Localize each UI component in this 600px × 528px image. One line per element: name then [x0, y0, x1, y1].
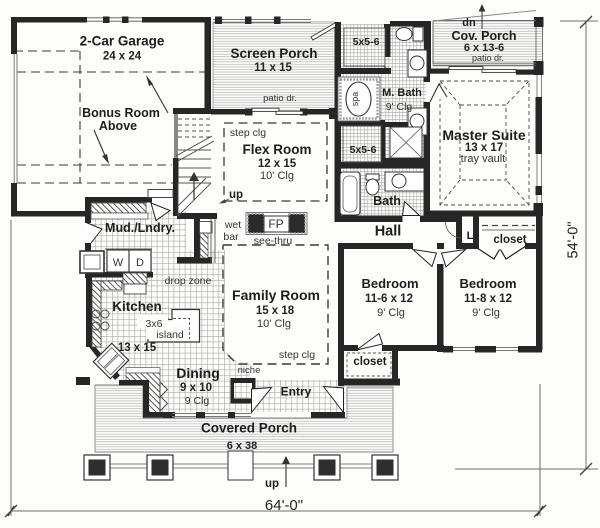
svg-text:up: up [229, 189, 243, 201]
svg-text:FP: FP [268, 217, 283, 231]
svg-text:9 Clg: 9 Clg [185, 395, 210, 407]
svg-text:W: W [113, 257, 124, 269]
svg-text:island: island [156, 329, 184, 341]
svg-text:Dining: Dining [176, 365, 220, 381]
svg-text:Bath: Bath [373, 194, 401, 208]
svg-text:54'-0": 54'-0" [566, 222, 582, 259]
svg-text:closet: closet [353, 356, 386, 368]
svg-text:Kitchen: Kitchen [112, 299, 162, 314]
svg-text:Mud./Lndry.: Mud./Lndry. [105, 221, 175, 235]
svg-text:Hall: Hall [375, 224, 402, 240]
svg-text:Bonus Room: Bonus Room [82, 106, 160, 120]
svg-text:11 x 15: 11 x 15 [254, 62, 292, 74]
svg-text:Master Suite: Master Suite [442, 127, 525, 143]
svg-text:Bedroom: Bedroom [459, 276, 516, 291]
svg-text:M. Bath: M. Bath [382, 87, 422, 99]
svg-text:11-8 x 12: 11-8 x 12 [464, 293, 512, 305]
svg-text:13 x 15: 13 x 15 [118, 342, 157, 354]
svg-text:9' Clg: 9' Clg [386, 101, 413, 113]
svg-text:9' Clg: 9' Clg [377, 307, 405, 319]
svg-text:step clg: step clg [230, 127, 266, 139]
svg-text:spa: spa [350, 92, 360, 107]
svg-text:L: L [467, 230, 474, 242]
svg-text:Covered Porch: Covered Porch [201, 421, 297, 436]
svg-text:12 x 15: 12 x 15 [258, 158, 297, 170]
svg-text:Cov. Porch: Cov. Porch [451, 29, 516, 43]
svg-text:15 x 18: 15 x 18 [256, 305, 295, 317]
svg-text:10' Clg: 10' Clg [257, 318, 291, 330]
svg-text:9 x 10: 9 x 10 [180, 382, 212, 394]
svg-text:5x5-6: 5x5-6 [350, 144, 377, 156]
svg-text:up: up [265, 478, 279, 490]
svg-text:Family Room: Family Room [232, 287, 320, 303]
svg-text:10' Clg: 10' Clg [260, 170, 294, 182]
svg-text:5x5-6: 5x5-6 [353, 36, 380, 48]
svg-text:drop zone: drop zone [165, 275, 212, 287]
svg-text:niche: niche [238, 365, 261, 376]
svg-text:2-Car Garage: 2-Car Garage [80, 34, 165, 49]
svg-text:patio dr.: patio dr. [263, 93, 297, 104]
svg-text:patio dr.: patio dr. [472, 53, 504, 63]
svg-text:Bedroom: Bedroom [361, 276, 418, 291]
svg-text:wet: wet [224, 219, 241, 231]
svg-text:24 x 24: 24 x 24 [103, 51, 142, 63]
svg-text:Screen Porch: Screen Porch [230, 46, 317, 61]
svg-text:6 x 38: 6 x 38 [227, 440, 258, 452]
svg-text:Above: Above [99, 119, 137, 133]
svg-text:closet: closet [493, 234, 526, 246]
svg-text:tray vault: tray vault [461, 153, 506, 165]
svg-text:see-thru: see-thru [254, 235, 293, 247]
svg-text:dn: dn [462, 17, 476, 29]
svg-text:D: D [136, 257, 144, 269]
svg-text:9' Clg: 9' Clg [472, 307, 500, 319]
svg-text:step clg: step clg [279, 349, 315, 361]
svg-text:Entry: Entry [281, 385, 312, 399]
svg-text:Flex Room: Flex Room [242, 142, 311, 157]
svg-text:bar: bar [223, 231, 239, 243]
svg-text:11-6 x 12: 11-6 x 12 [365, 293, 413, 305]
svg-text:64'-0": 64'-0" [265, 497, 303, 514]
